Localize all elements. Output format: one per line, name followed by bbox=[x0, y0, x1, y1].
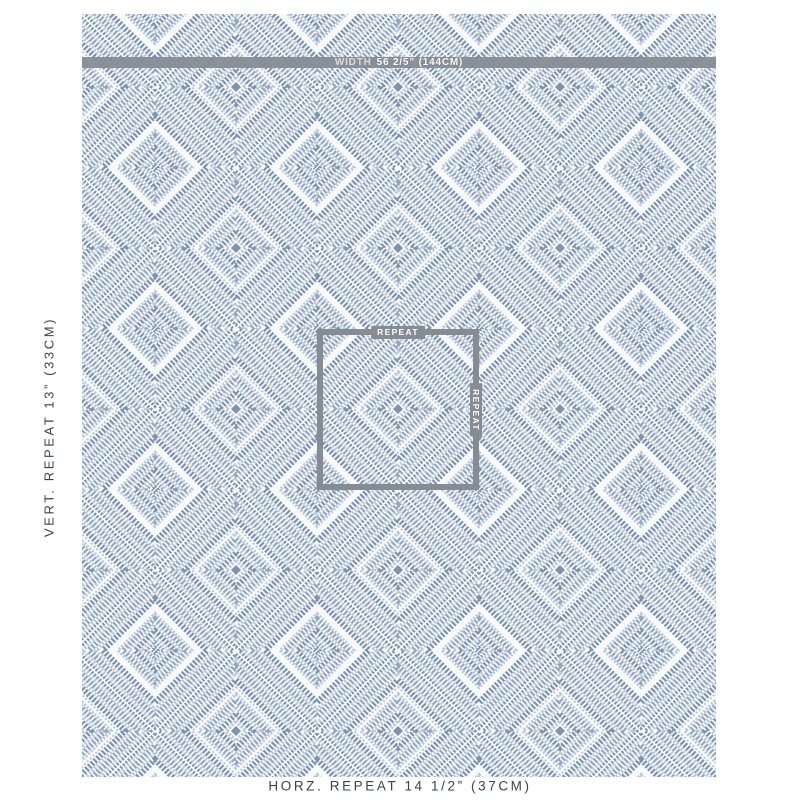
width-bar-label: WIDTH bbox=[335, 57, 372, 68]
repeat-label-side: REPEAT bbox=[470, 383, 483, 437]
width-bar: WIDTH 56 2/5” (144CM) bbox=[82, 57, 716, 68]
horizontal-repeat-label: HORZ. REPEAT 14 1/2” (37CM) bbox=[268, 779, 531, 794]
width-bar-value: 56 2/5” (144CM) bbox=[377, 57, 463, 68]
repeat-box: REPEAT REPEAT bbox=[317, 329, 479, 490]
fabric-swatch: WIDTH 56 2/5” (144CM) REPEAT REPEAT bbox=[82, 14, 716, 777]
repeat-label-top: REPEAT bbox=[371, 326, 425, 339]
vertical-repeat-label: VERT. REPEAT 13” (33CM) bbox=[42, 317, 57, 537]
